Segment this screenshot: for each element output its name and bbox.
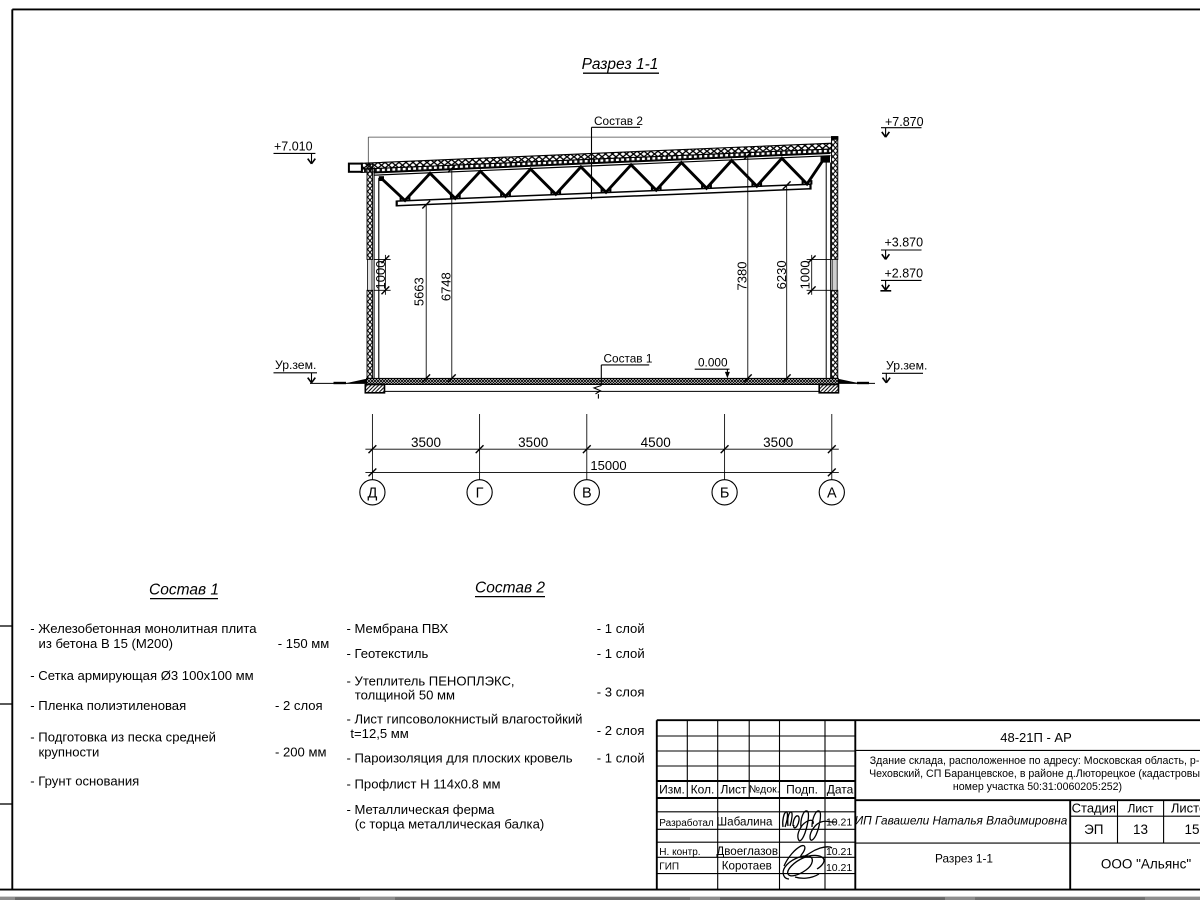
svg-text:10.21: 10.21: [826, 846, 852, 858]
svg-text:- Пленка полиэтиленовая: - Пленка полиэтиленовая: [30, 698, 186, 713]
svg-text:А: А: [827, 486, 837, 502]
svg-text:- Пароизоляция для плоских кро: - Пароизоляция для плоских кровель: [347, 751, 573, 766]
svg-text:3500: 3500: [518, 435, 548, 450]
svg-text:10.21: 10.21: [826, 862, 852, 874]
svg-text:13: 13: [1133, 822, 1148, 837]
svg-text:3500: 3500: [411, 435, 441, 450]
svg-text:+3.870: +3.870: [885, 235, 924, 249]
svg-text:- Железобетонная монолитная п: - Железобетонная монолитная плита: [30, 621, 257, 636]
svg-text:Состав 2: Состав 2: [594, 114, 643, 128]
svg-text:Г: Г: [476, 486, 484, 502]
svg-text:48-21П - АР: 48-21П - АР: [1000, 730, 1072, 745]
svg-text:15: 15: [1184, 822, 1199, 837]
svg-text:15000: 15000: [590, 458, 626, 473]
svg-text:Подп.: Подп.: [786, 783, 818, 797]
svg-text:номер участка 50:31:0060205:25: номер участка 50:31:0060205:252): [953, 781, 1122, 793]
svg-text:- 1 слой: - 1 слой: [597, 751, 645, 766]
svg-text:- 1 слой: - 1 слой: [597, 646, 645, 661]
svg-text:ГИП: ГИП: [659, 862, 679, 873]
svg-text:Двоеглазов: Двоеглазов: [716, 845, 778, 858]
svg-text:Шабалина: Шабалина: [717, 816, 774, 829]
svg-text:Ур.зем.: Ур.зем.: [886, 358, 927, 372]
svg-text:из бетона В 15 (М200): из бетона В 15 (М200): [39, 636, 174, 651]
svg-text:+2.870: +2.870: [885, 266, 924, 280]
svg-text:Чеховский, СП Баранцевское, в: Чеховский, СП Баранцевское, в районе д.Л…: [869, 768, 1200, 780]
svg-text:6748: 6748: [439, 272, 454, 301]
svg-text:- Металлическая ферма: - Металлическая ферма: [347, 802, 496, 817]
svg-text:Лист: Лист: [1127, 801, 1154, 815]
svg-text:(с торца металлическая балка): (с торца металлическая балка): [355, 817, 544, 832]
svg-text:7380: 7380: [734, 262, 749, 291]
svg-text:ИП Гавашели Наталья Владимиров: ИП Гавашели Наталья Владимировна: [855, 814, 1068, 828]
svg-text:Кол.: Кол.: [691, 783, 715, 797]
svg-text:Лист: Лист: [720, 783, 747, 797]
svg-text:1000: 1000: [797, 260, 812, 289]
svg-text:- 3 слоя: - 3 слоя: [597, 685, 645, 700]
svg-text:- 1 слой: - 1 слой: [597, 621, 645, 636]
svg-text:- Лист гипсоволокнистый влагос: - Лист гипсоволокнистый влагостойкий: [347, 712, 583, 727]
svg-text:- Подготовка из песка средней: - Подготовка из песка средней: [30, 730, 216, 745]
svg-text:ЭП: ЭП: [1084, 822, 1103, 837]
svg-text:Состав 1: Состав 1: [604, 352, 653, 366]
svg-text:крупности: крупности: [39, 745, 100, 760]
svg-text:Разработал: Разработал: [659, 817, 714, 829]
svg-text:1000: 1000: [373, 261, 388, 290]
svg-text:Б: Б: [720, 486, 730, 502]
svg-text:6230: 6230: [774, 260, 789, 289]
svg-text:Ур.зем.: Ур.зем.: [275, 358, 316, 372]
svg-text:- 200 мм: - 200 мм: [275, 745, 327, 760]
svg-text:ООО "Альянс": ООО "Альянс": [1101, 856, 1191, 871]
svg-text:Изм.: Изм.: [659, 783, 685, 797]
svg-text:Н. контр.: Н. контр.: [659, 847, 700, 858]
svg-text:- 2 слоя: - 2 слоя: [597, 723, 645, 738]
svg-text:Дата: Дата: [827, 783, 854, 797]
svg-text:- Грунт основания: - Грунт основания: [30, 774, 139, 789]
svg-text:- Утеплитель ПЕНОПЛЭКС,: - Утеплитель ПЕНОПЛЭКС,: [347, 674, 515, 689]
svg-text:10.21: 10.21: [826, 817, 852, 829]
svg-text:№док.: №док.: [749, 784, 780, 796]
svg-text:Состав 1: Состав 1: [149, 582, 219, 599]
svg-text:- Профлист Н 114х0.8 мм: - Профлист Н 114х0.8 мм: [347, 776, 501, 791]
svg-text:Здание склада, расположенное п: Здание склада, расположенное по адресу: …: [870, 755, 1200, 767]
svg-text:5663: 5663: [412, 277, 427, 306]
svg-text:Разрез 1-1: Разрез 1-1: [935, 851, 993, 865]
svg-text:- Сетка армирующая Ø3 100х100: - Сетка армирующая Ø3 100х100 мм: [30, 668, 253, 683]
svg-text:толщиной 50 мм: толщиной 50 мм: [355, 688, 455, 703]
svg-text:- 2 слоя: - 2 слоя: [275, 698, 323, 713]
svg-text:Листов: Листов: [1171, 800, 1200, 815]
svg-text:- Мембрана ПВХ: - Мембрана ПВХ: [347, 621, 449, 636]
svg-text:Коротаев: Коротаев: [722, 860, 772, 873]
svg-text:Разрез 1-1: Разрез 1-1: [582, 56, 659, 73]
svg-text:Д: Д: [367, 486, 377, 502]
svg-text:t=12,5 мм: t=12,5 мм: [350, 726, 408, 741]
svg-text:0.000: 0.000: [698, 355, 728, 369]
svg-text:4500: 4500: [641, 435, 671, 450]
svg-text:- Геотекстиль: - Геотекстиль: [347, 646, 429, 661]
svg-text:Стадия: Стадия: [1072, 800, 1116, 815]
svg-text:+7.010: +7.010: [274, 140, 313, 154]
svg-text:3500: 3500: [763, 435, 793, 450]
svg-text:- 150 мм: - 150 мм: [278, 636, 330, 651]
svg-text:+7.870: +7.870: [885, 115, 924, 129]
svg-text:Состав 2: Состав 2: [475, 580, 545, 597]
svg-text:В: В: [582, 486, 592, 502]
